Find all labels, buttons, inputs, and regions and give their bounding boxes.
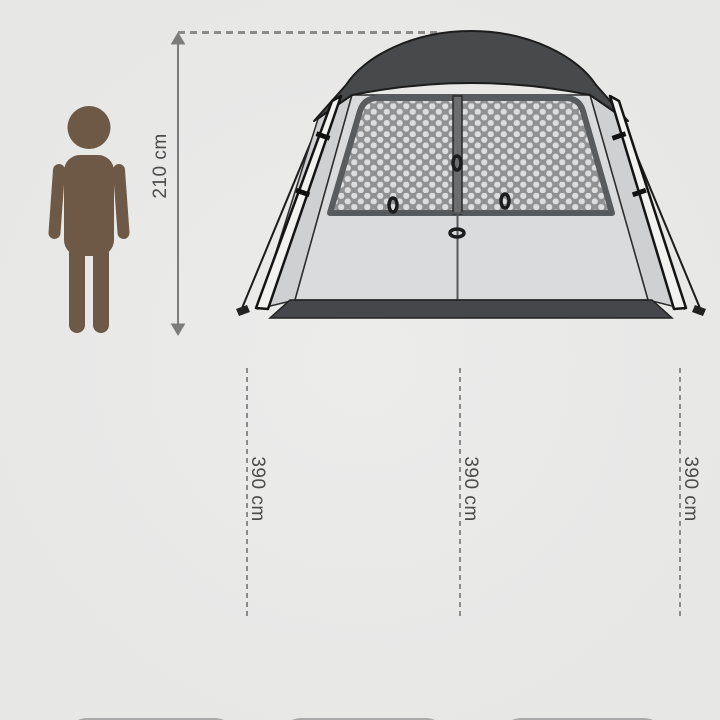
floor-plans-section: 274 cm MODO FULL 8 PERSONAS 274 cm MODO …: [0, 350, 720, 720]
tent-infographic-page: 210 cm: [0, 0, 720, 720]
tent-illustration: [234, 25, 708, 335]
tent-depth-label: 390 cm: [676, 364, 704, 614]
tent-base-band: [270, 300, 672, 318]
tent-height-label: 210 cm: [147, 41, 175, 291]
right-stake: [692, 305, 706, 316]
tent-mesh-window: [330, 98, 612, 213]
person-left-arm: [55, 170, 60, 233]
tent-depth-label: 390 cm: [243, 364, 271, 614]
left-stake: [236, 305, 250, 316]
person-head: [68, 106, 111, 149]
arrowhead-down: [172, 324, 185, 335]
tent-depth-label: 390 cm: [456, 364, 484, 614]
height-comparison-section: 210 cm: [0, 0, 720, 350]
person-right-arm: [119, 170, 124, 233]
person-silhouette-icon: [45, 106, 132, 336]
